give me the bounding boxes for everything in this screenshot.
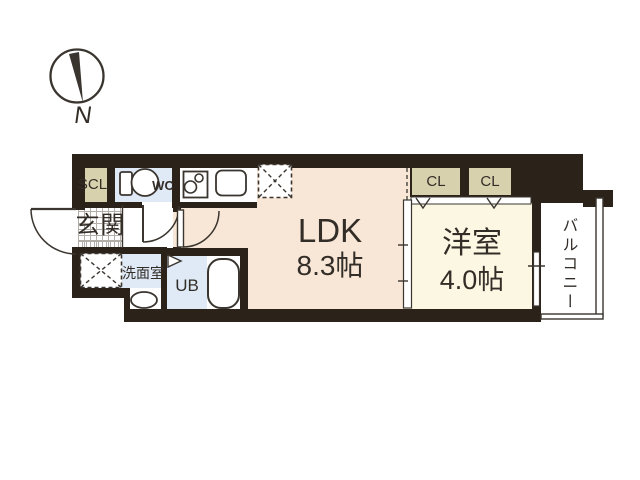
entrance-door-arc — [31, 209, 76, 254]
compass-north-label: N — [68, 104, 97, 128]
ub-label: UB — [168, 276, 206, 296]
yoshitsu-size-label: 4.0帖 — [412, 264, 532, 296]
floor-plan: CL CL — [0, 0, 640, 480]
genkan-label: 玄関 — [78, 211, 123, 241]
stove-icon — [184, 172, 208, 198]
ldk-label: LDK — [270, 214, 390, 248]
bathtub-icon — [208, 259, 239, 308]
balcony-label: バルコニー — [556, 212, 578, 316]
fridge-space-icon — [259, 165, 292, 198]
compass-icon — [51, 50, 104, 104]
ldk-size-label: 8.3帖 — [270, 250, 390, 282]
washer-space-icon — [81, 254, 122, 288]
sink-icon — [216, 171, 246, 196]
wc-label: WC — [156, 169, 170, 201]
washbasin-icon — [131, 292, 157, 308]
scl-label: SCL — [78, 168, 107, 202]
yoshitsu-label: 洋室 — [412, 228, 532, 260]
folding-door-icon — [168, 255, 181, 267]
ldk-door-arc — [178, 210, 220, 247]
senmen-label: 洗面室 — [121, 265, 165, 281]
closet-door-track — [411, 197, 531, 208]
wc-door-arc — [143, 205, 179, 242]
sliding-door — [398, 168, 412, 308]
